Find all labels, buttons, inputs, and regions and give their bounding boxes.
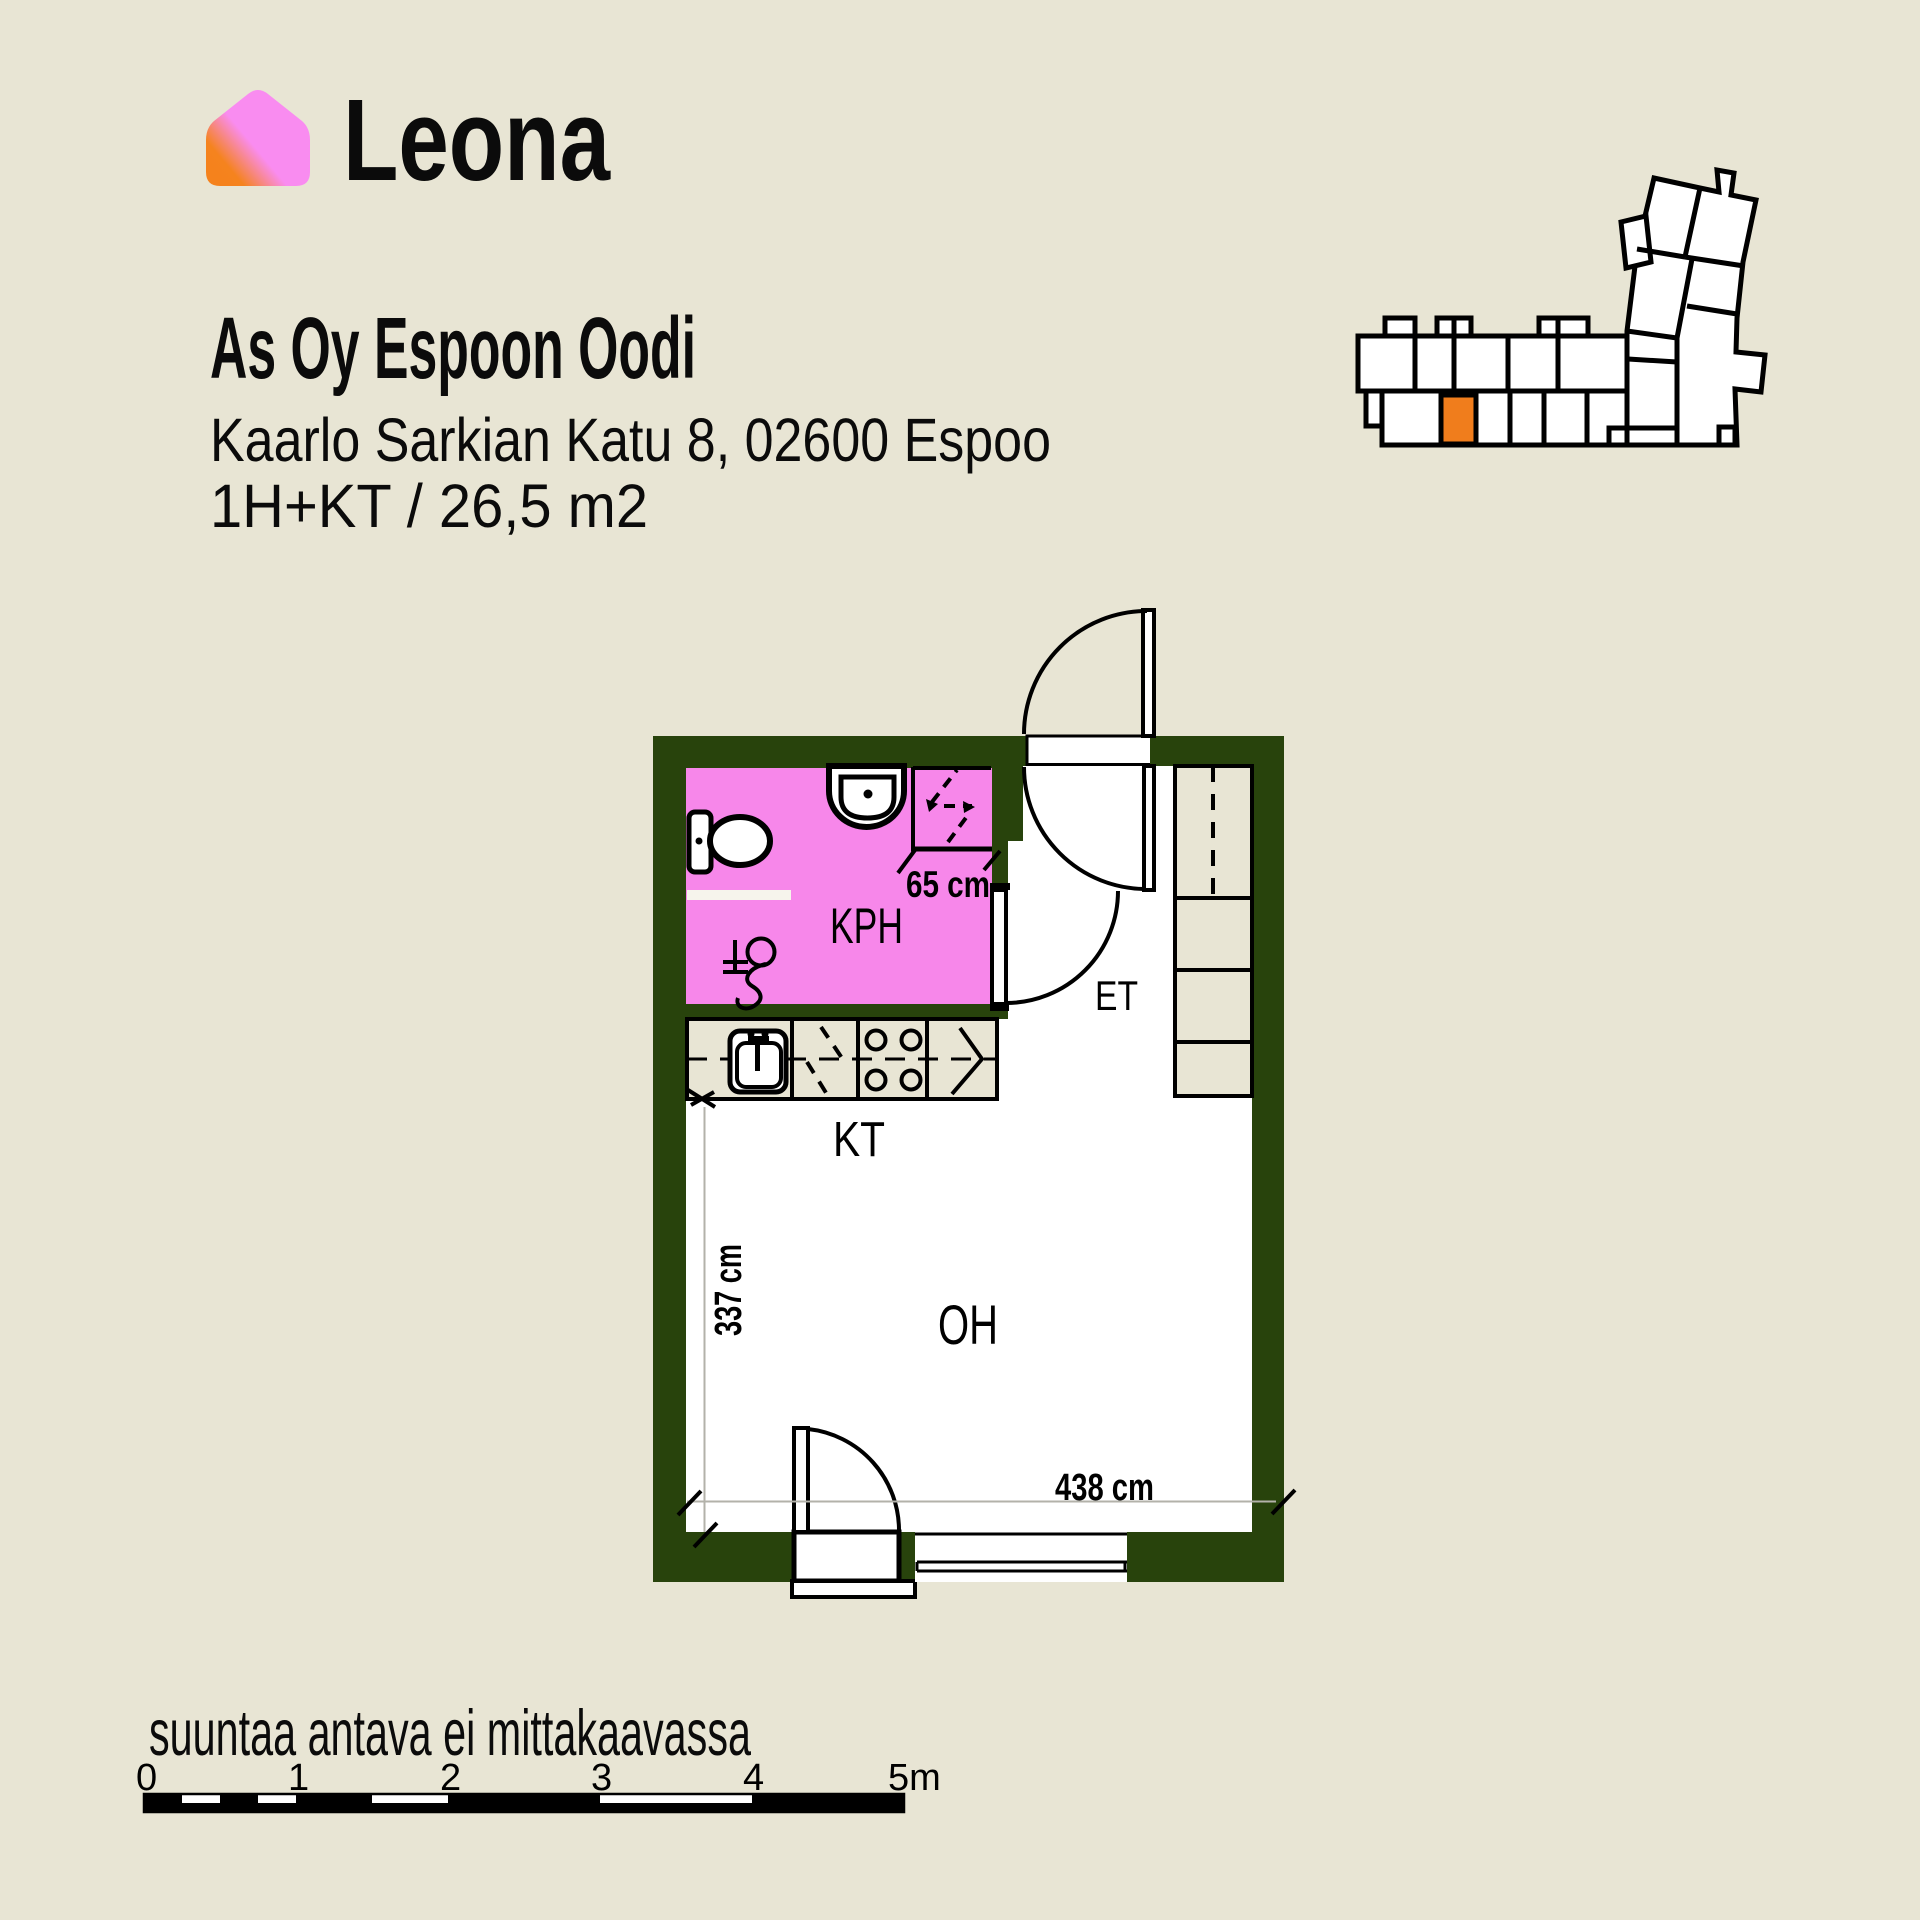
svg-text:438 cm: 438 cm xyxy=(1055,1467,1154,1509)
svg-text:4: 4 xyxy=(743,1757,764,1799)
svg-text:KT: KT xyxy=(833,1113,885,1167)
svg-text:337 cm: 337 cm xyxy=(708,1244,750,1336)
svg-text:3: 3 xyxy=(591,1757,612,1799)
svg-text:5m: 5m xyxy=(888,1757,941,1799)
svg-text:Leona: Leona xyxy=(343,75,611,205)
svg-text:As Oy Espoon Oodi: As Oy Espoon Oodi xyxy=(210,300,696,397)
svg-text:1H+KT / 26,5 m2: 1H+KT / 26,5 m2 xyxy=(210,472,648,540)
svg-text:1: 1 xyxy=(288,1757,309,1799)
svg-text:65 cm: 65 cm xyxy=(906,864,990,905)
svg-text:ET: ET xyxy=(1095,972,1138,1019)
svg-text:Kaarlo Sarkian Katu 8, 02600 E: Kaarlo Sarkian Katu 8, 02600 Espoo xyxy=(210,406,1051,474)
svg-text:OH: OH xyxy=(938,1293,998,1356)
svg-text:KPH: KPH xyxy=(830,898,903,954)
svg-text:2: 2 xyxy=(440,1757,461,1799)
svg-text:0: 0 xyxy=(136,1757,157,1799)
